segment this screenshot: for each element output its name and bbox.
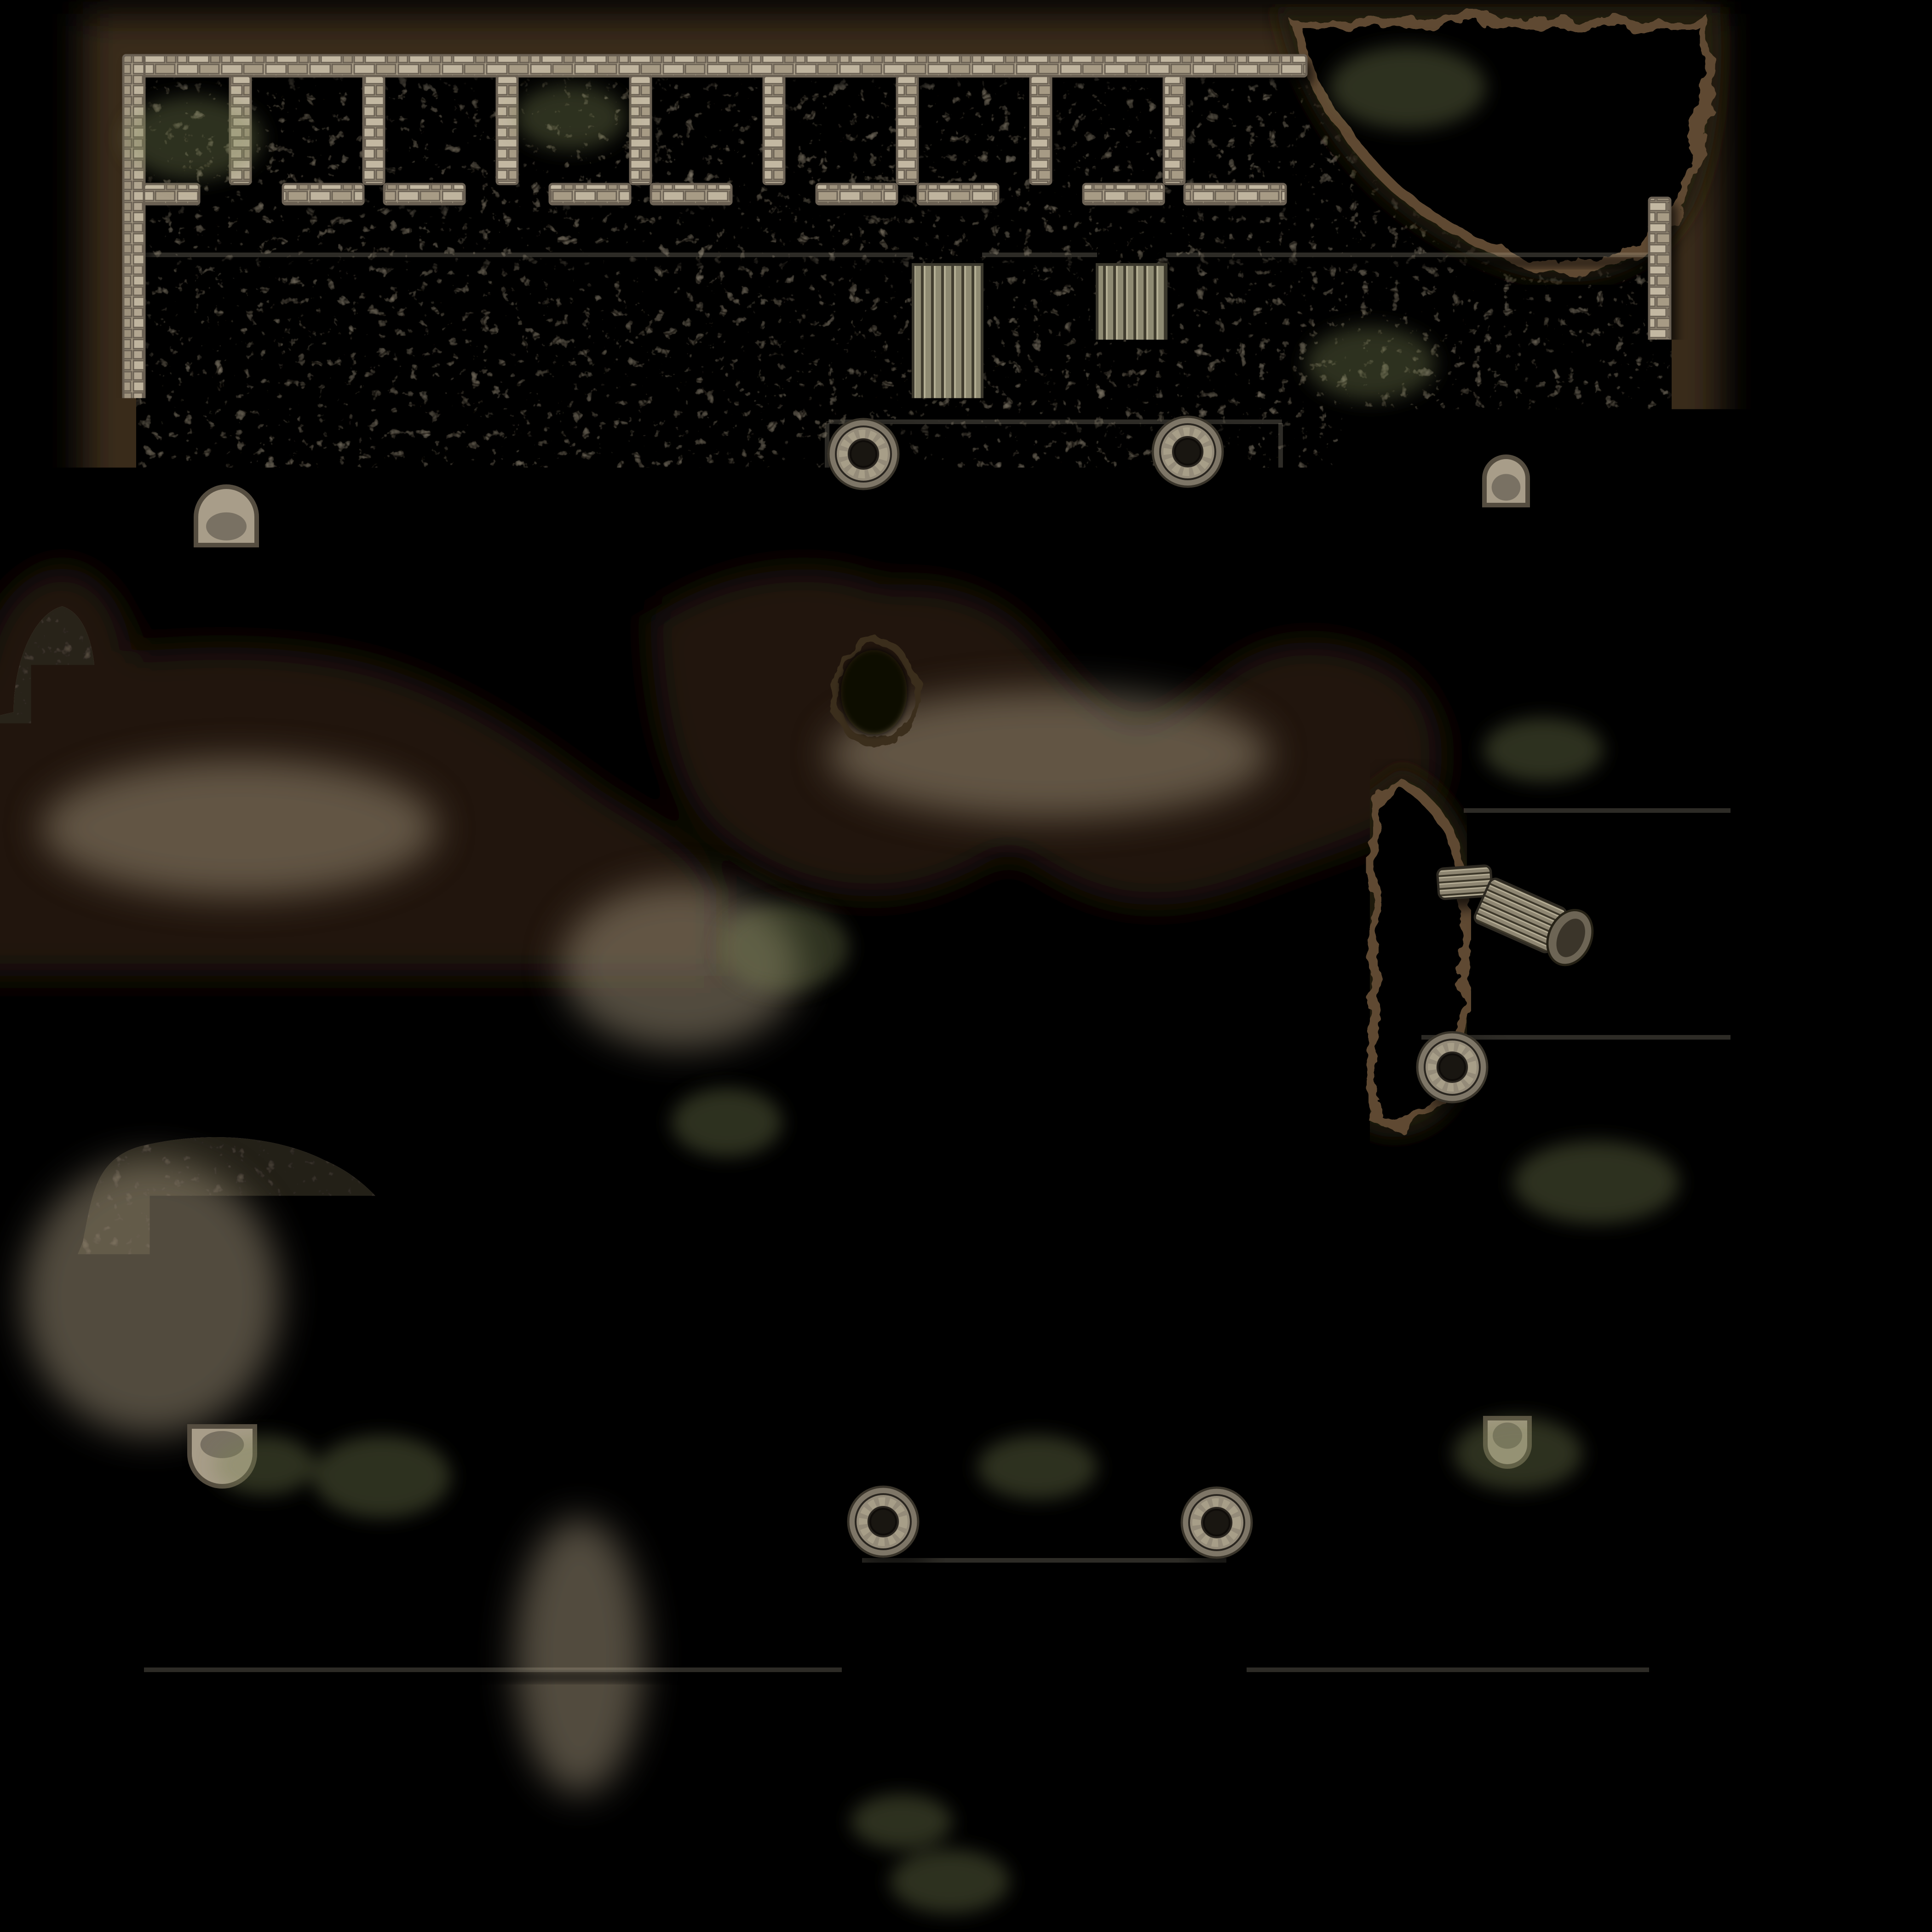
moss-patch: [1483, 718, 1603, 782]
wall-segment: [828, 530, 1282, 551]
wall-segment: [1649, 198, 1670, 667]
wall-segment: [497, 76, 517, 184]
arch-niche-shadow: [1492, 474, 1521, 500]
wall-segment: [1311, 1737, 1377, 1757]
north-hall-west-stair: [913, 264, 982, 416]
moss-patch: [977, 1435, 1097, 1500]
wall-segment: [733, 1757, 754, 1839]
moss-patch: [890, 1849, 1010, 1914]
wall-segment: [445, 405, 601, 424]
wall-segment: [566, 885, 700, 906]
wall-segment: [1534, 1757, 1554, 1839]
wall-segment: [630, 76, 651, 184]
wall-segment: [816, 184, 897, 204]
sink-hole: [841, 650, 907, 735]
temple-south-stair: [1608, 980, 1674, 1033]
dungeon-map: [0, 0, 1932, 1932]
wall-segment: [1083, 184, 1164, 204]
arch-niche: [1484, 457, 1528, 505]
hole-layer: [833, 642, 915, 743]
wall-segment: [333, 882, 409, 902]
wall-segment: [1164, 76, 1184, 184]
wall-segment: [1540, 1492, 1601, 1512]
altar-top: [1812, 874, 1847, 966]
wall-segment: [123, 1839, 635, 1860]
wall-segment: [1177, 1737, 1244, 1757]
wall-segment: [1267, 1757, 1288, 1839]
wall-segment: [527, 424, 546, 499]
wall-segment: [651, 184, 731, 204]
wall-segment: [836, 656, 857, 1330]
ledge-edge: [1166, 253, 1649, 257]
ledge-edge: [828, 420, 1282, 424]
wall-segment: [1133, 1757, 1154, 1839]
ledge-edge: [1727, 812, 1731, 1039]
arch-niche: [196, 487, 257, 545]
wall-segment: [764, 76, 784, 184]
wall-segment: [1345, 1659, 1490, 1679]
temple-north-stair: [1610, 814, 1674, 865]
north-hall-east-stair: [1097, 264, 1166, 416]
wall-segment: [918, 184, 998, 204]
wall-segment: [663, 405, 749, 424]
wall-segment: [510, 1737, 577, 1757]
wall-segment: [1030, 76, 1051, 184]
wall-segment: [515, 1409, 1235, 1431]
wall-segment: [1400, 1757, 1421, 1839]
wall-segment: [144, 184, 199, 204]
cave-light: [23, 1159, 281, 1435]
wall-segment: [138, 55, 1306, 76]
moss-patch: [214, 1435, 315, 1495]
moss-patch: [124, 97, 262, 179]
ledge-edge: [1464, 808, 1731, 813]
wall-segment: [1357, 811, 1378, 1417]
wall-segment: [247, 1530, 392, 1550]
altar-layer: [1807, 869, 1853, 972]
west-cave-stair: [642, 905, 693, 1025]
wall-segment: [1345, 647, 1670, 668]
wall-segment: [777, 1737, 844, 1757]
wall-segment: [314, 424, 332, 499]
wall-segment: [1633, 694, 1881, 715]
ledge-edge: [144, 1667, 842, 1672]
moss-patch: [313, 1435, 451, 1518]
wall-segment: [1410, 1431, 1430, 1509]
wall-segment: [123, 1409, 144, 1860]
wall-segment: [897, 76, 918, 184]
south-hall-east-stair: [1118, 1564, 1184, 1693]
wall-segment: [823, 1309, 1236, 1330]
south-hall-west-stair: [915, 1564, 982, 1693]
wall-segment: [1044, 1737, 1110, 1757]
wall-segment: [1357, 647, 1378, 716]
ledge-edge: [1278, 423, 1283, 530]
ledge-shadow: [1731, 812, 1742, 1039]
ledge-shadow: [144, 1671, 842, 1683]
ledge-shadow: [1166, 256, 1649, 268]
arch-niche-shadow: [206, 512, 247, 540]
wall-segment: [200, 1757, 220, 1839]
wall-segment: [1214, 635, 1236, 1330]
wall-segment: [1577, 1737, 1629, 1757]
wall-segment: [384, 184, 465, 204]
moss-patch: [1329, 46, 1486, 129]
moss-patch: [851, 1794, 952, 1849]
wall-segment: [1860, 694, 1881, 1154]
wall-segment: [333, 1757, 354, 1839]
wall-segment: [718, 1839, 1670, 1860]
moss-patch: [1454, 1417, 1582, 1490]
cave-light: [41, 759, 437, 897]
wall-segment: [1649, 1409, 1670, 1860]
wall-segment: [910, 1737, 977, 1757]
wall-segment: [363, 76, 384, 184]
wall-segment: [1184, 184, 1286, 204]
ledge-edge: [144, 253, 913, 257]
wall-segment: [1357, 520, 1378, 647]
ledge-edge: [982, 253, 1097, 257]
ledge-shadow: [1282, 423, 1294, 530]
wall-segment: [1421, 1133, 1521, 1154]
moss-patch: [672, 1088, 782, 1157]
wall-segment: [377, 1737, 443, 1757]
moss-patch: [1306, 327, 1435, 400]
wall-segment: [466, 1757, 487, 1839]
wall-segment: [550, 184, 630, 204]
wall-segment: [813, 499, 834, 642]
wall-segment: [144, 1530, 212, 1550]
wall-segment: [1444, 1737, 1511, 1757]
ledge-shadow: [144, 256, 913, 268]
moss-patch: [1513, 1141, 1679, 1224]
wall-segment: [493, 1431, 513, 1530]
moss-patch: [720, 904, 849, 991]
wall-segment: [1430, 1492, 1490, 1512]
wall-segment: [162, 405, 355, 424]
wall-segment: [1677, 1133, 1881, 1154]
wall-segment: [1410, 436, 1430, 520]
ledge-shadow: [1464, 812, 1731, 824]
wall-segment: [1000, 1757, 1021, 1839]
moss-patch: [515, 85, 626, 149]
wall-segment: [1540, 1659, 1612, 1679]
wall-segment: [283, 184, 363, 204]
wall-segment: [243, 1737, 310, 1757]
ledge-shadow: [982, 256, 1097, 268]
